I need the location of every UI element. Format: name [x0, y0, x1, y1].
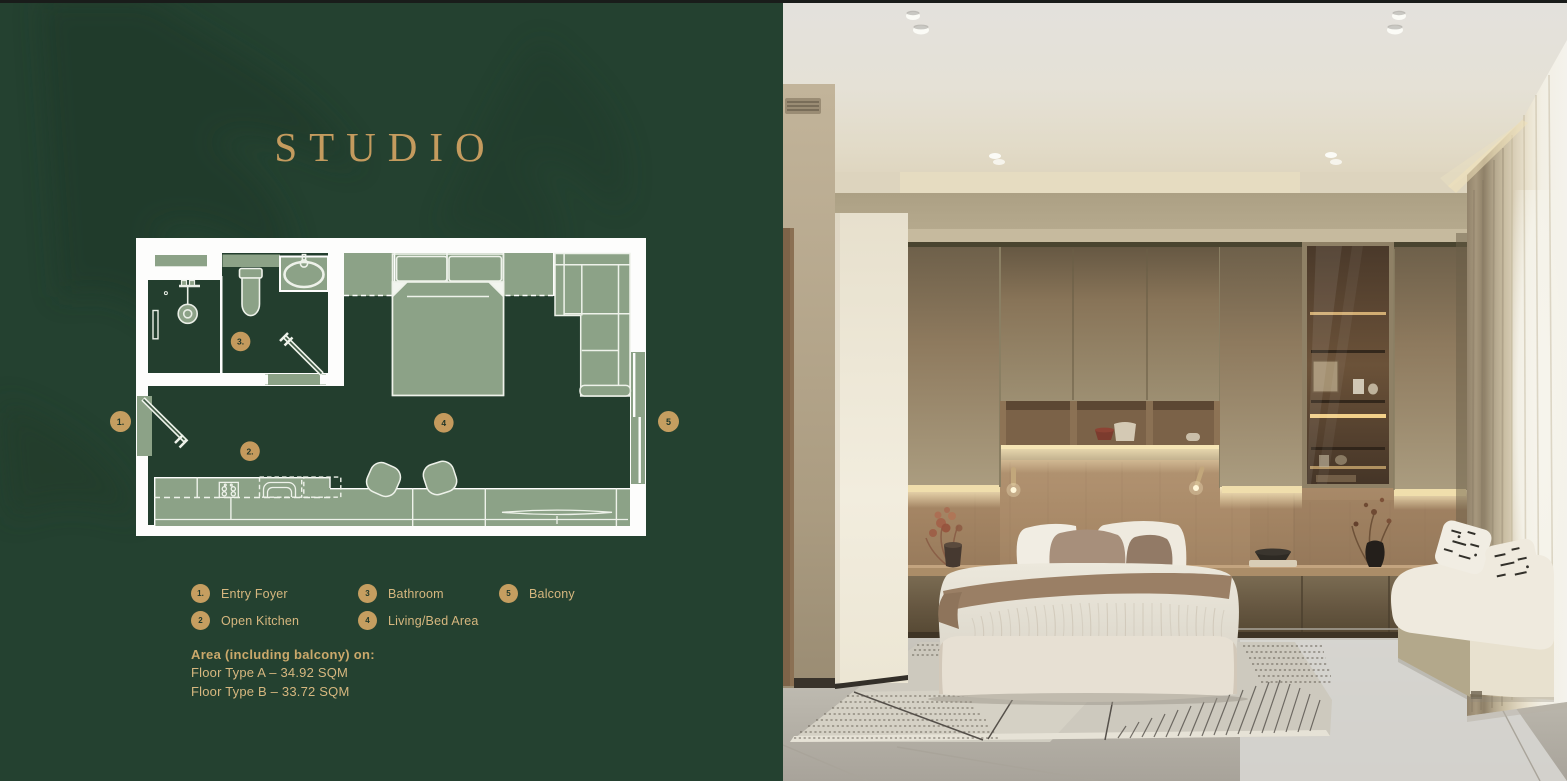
svg-text:3.: 3. — [237, 337, 244, 347]
svg-text:2.: 2. — [246, 446, 253, 456]
svg-text:4: 4 — [441, 418, 446, 428]
